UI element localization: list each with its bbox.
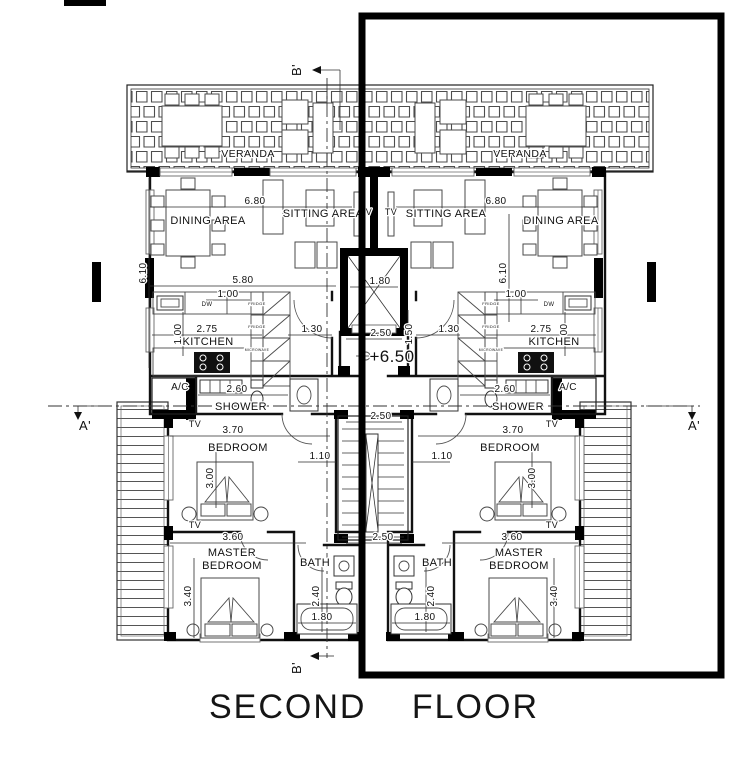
terrace-left bbox=[117, 402, 168, 640]
label-master-bedroom-right-1: MASTER bbox=[495, 547, 543, 559]
label-fridge-left-1: FRIDGE bbox=[248, 301, 266, 306]
label-level-marker: +6.50 bbox=[369, 347, 414, 366]
elevator bbox=[344, 252, 404, 333]
label-dim-680-left: 6.80 bbox=[244, 196, 265, 207]
label-dw-left: DW bbox=[202, 302, 213, 308]
label-dw-right: DW bbox=[544, 302, 555, 308]
label-bedroom-right: BEDROOM bbox=[480, 442, 540, 454]
label-veranda-left: VERANDA bbox=[221, 148, 275, 160]
label-dim-110-right: 1.10 bbox=[431, 451, 452, 462]
label-dim-300v-left: 3.00 bbox=[205, 467, 216, 488]
label-kitchen-left: KITCHEN bbox=[182, 336, 233, 348]
label-tv-master-left: TV bbox=[189, 520, 201, 530]
label-master-bedroom-right-2: BEDROOM bbox=[489, 560, 549, 572]
label-dim-610-left: 6.10 bbox=[138, 262, 149, 283]
label-dim-180-bath-right: 1.80 bbox=[414, 612, 435, 623]
label-dim-300v-right: 3.00 bbox=[527, 467, 538, 488]
label-microwave-right: MICROWAVE bbox=[479, 348, 504, 352]
crop-artifact bbox=[64, 0, 106, 6]
label-dim-100-left: 1.00 bbox=[217, 289, 238, 300]
floor-plan-page: VERANDAVERANDADINING AREASITTING AREATVT… bbox=[0, 0, 748, 777]
label-section-b-top: B' bbox=[289, 64, 304, 76]
label-dim-260-left: 2.60 bbox=[226, 384, 247, 395]
staircase bbox=[338, 416, 408, 540]
section-a-left-arrow bbox=[78, 406, 108, 413]
label-bath-right: BATH bbox=[422, 557, 452, 569]
label-dining-area-left: DINING AREA bbox=[170, 215, 246, 227]
label-dim-250-center-3: 2.50 bbox=[372, 532, 393, 543]
label-dim-360-right: 3.60 bbox=[501, 532, 522, 543]
label-dim-130-left: 1.30 bbox=[301, 324, 322, 335]
label-dim-180-elevator: 1.80 bbox=[369, 276, 390, 287]
label-dim-370-left: 3.70 bbox=[222, 425, 243, 436]
veranda-table-left bbox=[162, 94, 222, 158]
label-fridge-right-1: FRIDGE bbox=[482, 301, 500, 306]
label-dim-275-left: 2.75 bbox=[196, 324, 217, 335]
label-fridge-right-2: FRIDGE bbox=[482, 324, 500, 329]
stove-right bbox=[518, 352, 554, 373]
bed-bedroom-right bbox=[480, 462, 566, 521]
label-section-a-right: A' bbox=[688, 418, 700, 433]
label-dim-275-right: 2.75 bbox=[530, 324, 551, 335]
terrace-right bbox=[580, 402, 631, 640]
label-master-bedroom-left-2: BEDROOM bbox=[202, 560, 262, 572]
label-tv-master-right: TV bbox=[546, 520, 558, 530]
label-bedroom-left: BEDROOM bbox=[208, 442, 268, 454]
label-veranda-right: VERANDA bbox=[493, 148, 547, 160]
label-ac-left: A/C bbox=[171, 382, 189, 393]
label-dim-680-right: 6.80 bbox=[485, 196, 506, 207]
label-bath-left: BATH bbox=[300, 557, 330, 569]
label-section-b-bottom: B' bbox=[289, 662, 304, 674]
label-dim-180-bath-left: 1.80 bbox=[311, 612, 332, 623]
label-tv-bedroom-left: TV bbox=[189, 419, 201, 429]
label-tv-sitting-right: TV bbox=[385, 207, 397, 217]
label-master-bedroom-left-1: MASTER bbox=[208, 547, 256, 559]
bed-master-left bbox=[187, 578, 273, 638]
label-kitchen-right: KITCHEN bbox=[528, 336, 579, 348]
label-dim-150v-center: 1.50 bbox=[404, 323, 415, 344]
label-dim-340v-left: 3.40 bbox=[183, 585, 194, 606]
label-dim-340v-right: 3.40 bbox=[549, 585, 560, 606]
label-dim-100-right: 1.00 bbox=[505, 289, 526, 300]
floor-title: SECOND FLOOR bbox=[209, 688, 539, 726]
label-dim-240v-left: 2.40 bbox=[311, 585, 322, 606]
label-dim-240v-right: 2.40 bbox=[426, 585, 437, 606]
label-dim-260-right: 2.60 bbox=[494, 384, 515, 395]
label-shower-right: SHOWER bbox=[492, 401, 544, 413]
label-dim-360-left: 3.60 bbox=[222, 532, 243, 543]
label-dim-370-right: 3.70 bbox=[502, 425, 523, 436]
label-dim-110-left: 1.10 bbox=[309, 451, 330, 462]
label-dim-250-center-1: 2.50 bbox=[370, 328, 391, 339]
bed-bedroom-left bbox=[182, 462, 268, 521]
label-dim-130-right: 1.30 bbox=[438, 324, 459, 335]
stove-left bbox=[194, 352, 230, 373]
section-a-right-arrow bbox=[646, 406, 692, 413]
veranda bbox=[127, 85, 653, 172]
label-section-a-left: A' bbox=[79, 418, 91, 433]
label-microwave-left: MICROWAVE bbox=[245, 348, 270, 352]
label-dim-580-left: 5.80 bbox=[232, 275, 253, 286]
label-sitting-area-right: SITTING AREA bbox=[406, 208, 487, 220]
label-dining-area-right: DINING AREA bbox=[523, 215, 599, 227]
label-shower-left: SHOWER bbox=[215, 401, 267, 413]
label-sitting-area-left: SITTING AREA bbox=[283, 208, 364, 220]
label-dim-610-right: 6.10 bbox=[498, 262, 509, 283]
label-tv-bedroom-right: TV bbox=[546, 419, 558, 429]
label-fridge-left-2: FRIDGE bbox=[248, 324, 266, 329]
floor-plan-drawing: VERANDAVERANDADINING AREASITTING AREATVT… bbox=[0, 0, 748, 777]
label-ac-right: A/C bbox=[559, 382, 577, 393]
label-dim-250-center-2: 2.50 bbox=[370, 411, 391, 422]
